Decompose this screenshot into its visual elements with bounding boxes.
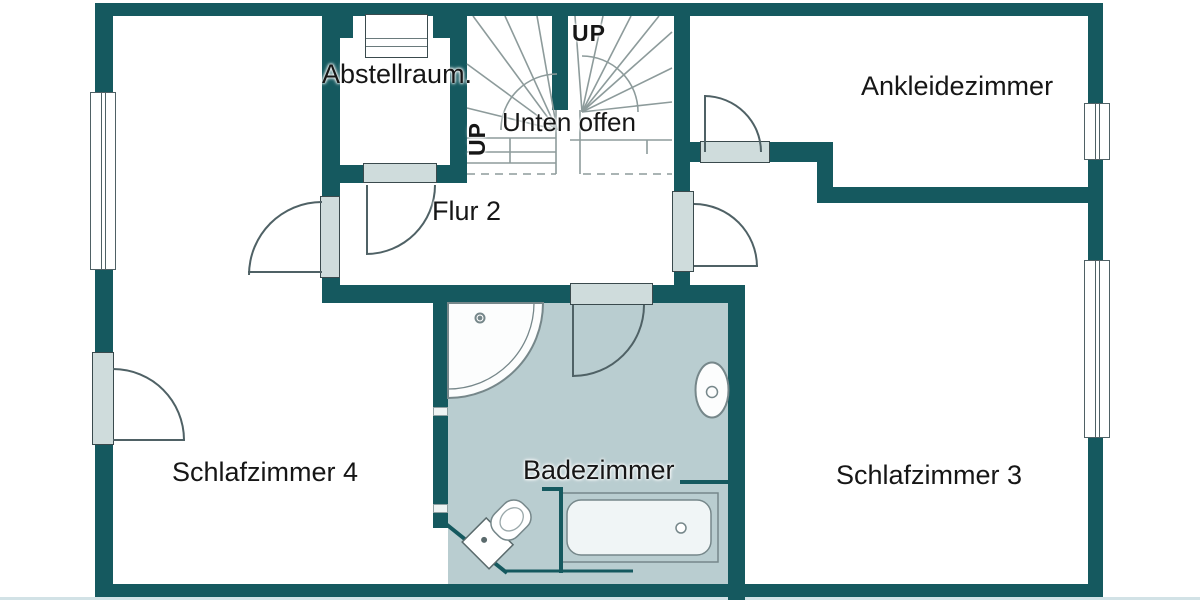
shower [448, 303, 543, 398]
chimney-shaft [365, 14, 428, 58]
wall-top [95, 3, 1103, 16]
room-label-flur2: Flur 2 [432, 196, 501, 227]
door-leaf [704, 95, 706, 152]
door-swing-arc [694, 203, 758, 267]
room-label-abstellraum: Abstellraum. [322, 59, 472, 90]
room-label-schlafzimmer4: Schlafzimmer 4 [172, 457, 358, 488]
room-label-schlafzimmer3: Schlafzimmer 3 [836, 460, 1022, 491]
door-leaf [366, 185, 368, 253]
stair-up-label-right: UP [572, 20, 606, 47]
wall-ankleide-bottom-right [817, 187, 1103, 203]
door-schlafzimmer3 [672, 191, 694, 272]
door-leaf [113, 439, 185, 441]
wall-stub [337, 16, 353, 38]
door-schlafzimmer4-flur [320, 196, 340, 278]
door-leaf [248, 271, 322, 273]
stair-up-label-left: UP [464, 122, 491, 156]
door-swing-arc [113, 368, 185, 440]
window-schlafzimmer4 [90, 92, 116, 270]
window-schlafzimmer3 [1084, 260, 1110, 438]
door-exterior-schlafzimmer4 [92, 352, 114, 445]
door-leaf [694, 265, 758, 267]
door-swing-arc [366, 185, 436, 255]
door-swing-arc [248, 201, 322, 275]
annotation-unten-offen: Unten offen [502, 107, 636, 138]
sink [462, 492, 538, 568]
floor-plan: Abstellraum. Ankleidezimmer Unten offen … [0, 0, 1200, 600]
staircase [440, 16, 690, 182]
bathtub [560, 493, 718, 562]
room-label-ankleidezimmer: Ankleidezimmer [861, 71, 1053, 102]
door-abstellraum [363, 163, 437, 183]
room-label-badezimmer: Badezimmer [523, 455, 675, 486]
bathroom-fixtures [430, 285, 760, 600]
door-swing-arc [704, 95, 762, 152]
window-ankleidezimmer [1084, 103, 1110, 160]
toilet [696, 363, 729, 418]
